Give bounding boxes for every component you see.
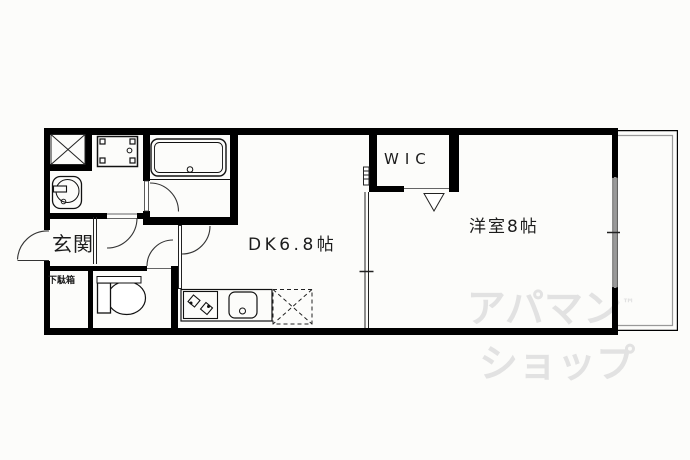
gas-stove-icon	[184, 292, 218, 319]
floor-plan: アパマン™ ショップ	[0, 0, 690, 460]
hall-dk-partition	[179, 226, 182, 289]
bathroom-door-arc	[145, 181, 179, 212]
kitchen-counter	[181, 290, 272, 322]
wic-room-label: WIC	[384, 150, 432, 168]
washbasin-icon	[53, 177, 82, 209]
wic-opening-triangle	[424, 194, 444, 212]
dining-kitchen-label: DK6.8帖	[248, 230, 337, 255]
door-opening-edges	[107, 189, 449, 269]
kitchen-sink-icon	[229, 292, 257, 318]
balcony	[618, 131, 677, 331]
bathtub-icon	[150, 139, 230, 180]
entrance-door-arc	[18, 231, 50, 261]
x-closet-icon	[51, 135, 85, 165]
washing-machine-icon	[98, 137, 138, 167]
entrance-room-label: 玄関	[52, 228, 94, 257]
western-room-label: 洋室8帖	[469, 212, 539, 237]
floor-plan-drawing	[0, 0, 690, 460]
washroom-door-arc	[107, 218, 137, 248]
toilet-door-arc	[147, 240, 173, 266]
window-right	[607, 177, 620, 288]
toilet-icon	[97, 277, 146, 315]
dk-door-arc	[182, 226, 210, 254]
refrigerator-space-icon	[273, 290, 312, 325]
shoe-cabinet-label: 下駄箱	[48, 273, 75, 286]
